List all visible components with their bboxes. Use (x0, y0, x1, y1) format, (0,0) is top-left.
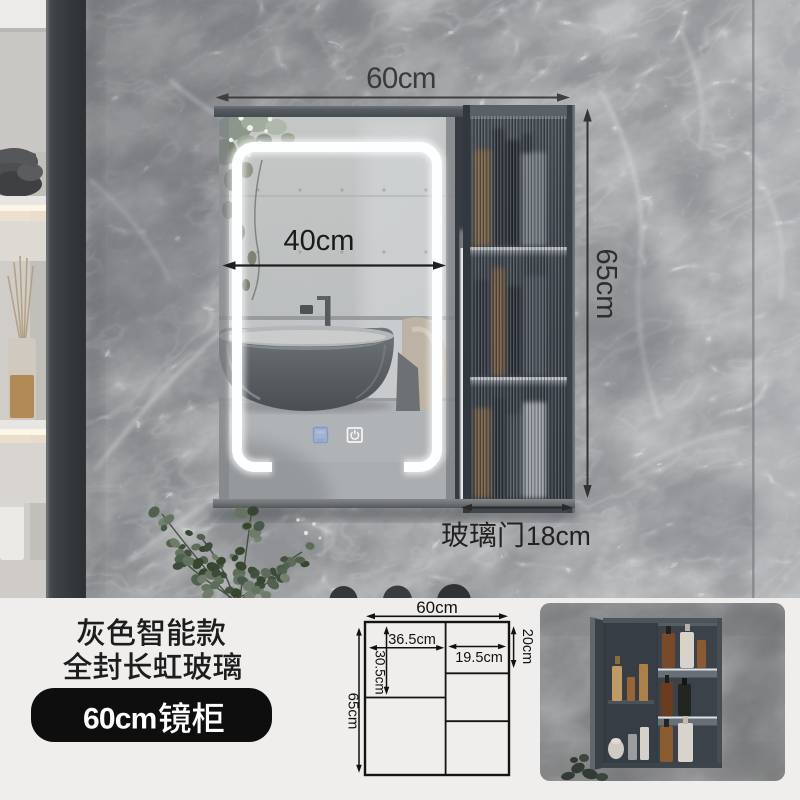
svg-text:36.5cm: 36.5cm (388, 632, 436, 648)
svg-text:65cm: 65cm (590, 249, 622, 320)
svg-text:20cm: 20cm (519, 629, 535, 664)
svg-text:60cm: 60cm (416, 598, 458, 617)
svg-text:30.5cm: 30.5cm (373, 650, 388, 694)
svg-text:60cm: 60cm (83, 703, 157, 736)
svg-text:40cm: 40cm (284, 225, 355, 257)
svg-text:60cm: 60cm (366, 62, 436, 95)
svg-text:18cm: 18cm (526, 521, 591, 551)
svg-text:19.5cm: 19.5cm (455, 650, 503, 666)
